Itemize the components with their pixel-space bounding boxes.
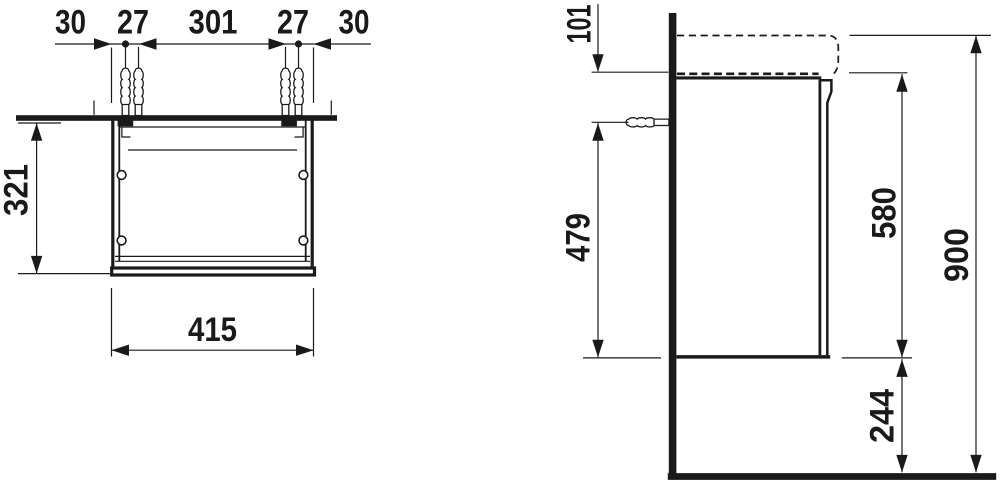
mounting-bracket-left bbox=[118, 121, 134, 127]
wall-plug-icon bbox=[121, 68, 130, 115]
arrowhead bbox=[314, 38, 332, 49]
dim-label-479: 479 bbox=[560, 213, 598, 262]
dim-label-27-left: 27 bbox=[117, 4, 149, 42]
dimension-width-415: 415 bbox=[112, 288, 314, 357]
arrowhead bbox=[31, 256, 42, 274]
wall-plug-icon bbox=[134, 68, 143, 115]
hinge-bump bbox=[299, 171, 308, 180]
arrowhead bbox=[896, 340, 907, 358]
dim-label-30-right: 30 bbox=[339, 4, 370, 42]
door-front-band bbox=[112, 268, 315, 275]
fixing-plug-icon bbox=[626, 118, 669, 127]
wall-plugs-plan bbox=[121, 68, 303, 115]
dim-label-580: 580 bbox=[866, 187, 904, 239]
cabinet-plan-body bbox=[112, 121, 315, 276]
wall-plug-icon bbox=[281, 68, 290, 115]
rail-hook-left bbox=[122, 128, 131, 138]
arrowhead bbox=[896, 74, 907, 92]
arrowhead bbox=[896, 359, 907, 377]
wall-plug-icon bbox=[294, 68, 303, 115]
plan-view: 30 27 301 27 30 bbox=[0, 4, 371, 357]
arrowhead bbox=[970, 455, 981, 473]
arrowhead bbox=[94, 38, 112, 49]
arrowhead bbox=[31, 123, 42, 141]
arrowhead bbox=[592, 123, 603, 141]
dimension-580: 580 bbox=[842, 73, 912, 358]
hinge-bump bbox=[299, 236, 308, 245]
arrowhead bbox=[592, 340, 603, 358]
top-dimension-chain: 30 27 301 27 30 bbox=[55, 4, 371, 104]
cabinet-side-body bbox=[676, 76, 831, 357]
door-profile bbox=[821, 80, 832, 355]
dimension-479: 479 bbox=[560, 122, 662, 358]
hinge-bump bbox=[117, 171, 126, 180]
dim-label-321: 321 bbox=[0, 164, 36, 216]
vanity-installation-drawing: 30 27 301 27 30 bbox=[0, 0, 1000, 482]
dim-label-900: 900 bbox=[938, 228, 976, 282]
arrowhead bbox=[296, 345, 314, 356]
dim-label-301: 301 bbox=[189, 4, 238, 42]
dim-label-101: 101 bbox=[561, 5, 599, 44]
mounting-bracket-right bbox=[281, 121, 297, 127]
dimension-101: 101 bbox=[561, 4, 669, 72]
dimension-depth-321: 321 bbox=[0, 123, 110, 274]
dim-label-244: 244 bbox=[864, 389, 902, 443]
technical-drawing-page: 30 27 301 27 30 bbox=[0, 0, 1000, 482]
arrowhead bbox=[896, 455, 907, 473]
rail-hook-right bbox=[295, 128, 304, 138]
arrowhead bbox=[112, 345, 130, 356]
washbasin-dashed-outline bbox=[677, 36, 838, 76]
dim-label-30-left: 30 bbox=[55, 4, 86, 42]
dimension-244: 244 bbox=[864, 359, 908, 472]
arrowhead bbox=[592, 54, 603, 72]
side-view: 101 479 580 244 bbox=[560, 4, 997, 477]
dim-label-27-right: 27 bbox=[277, 4, 309, 42]
hinge-bump bbox=[117, 236, 126, 245]
arrowhead bbox=[970, 36, 981, 54]
dim-label-415: 415 bbox=[188, 311, 237, 349]
